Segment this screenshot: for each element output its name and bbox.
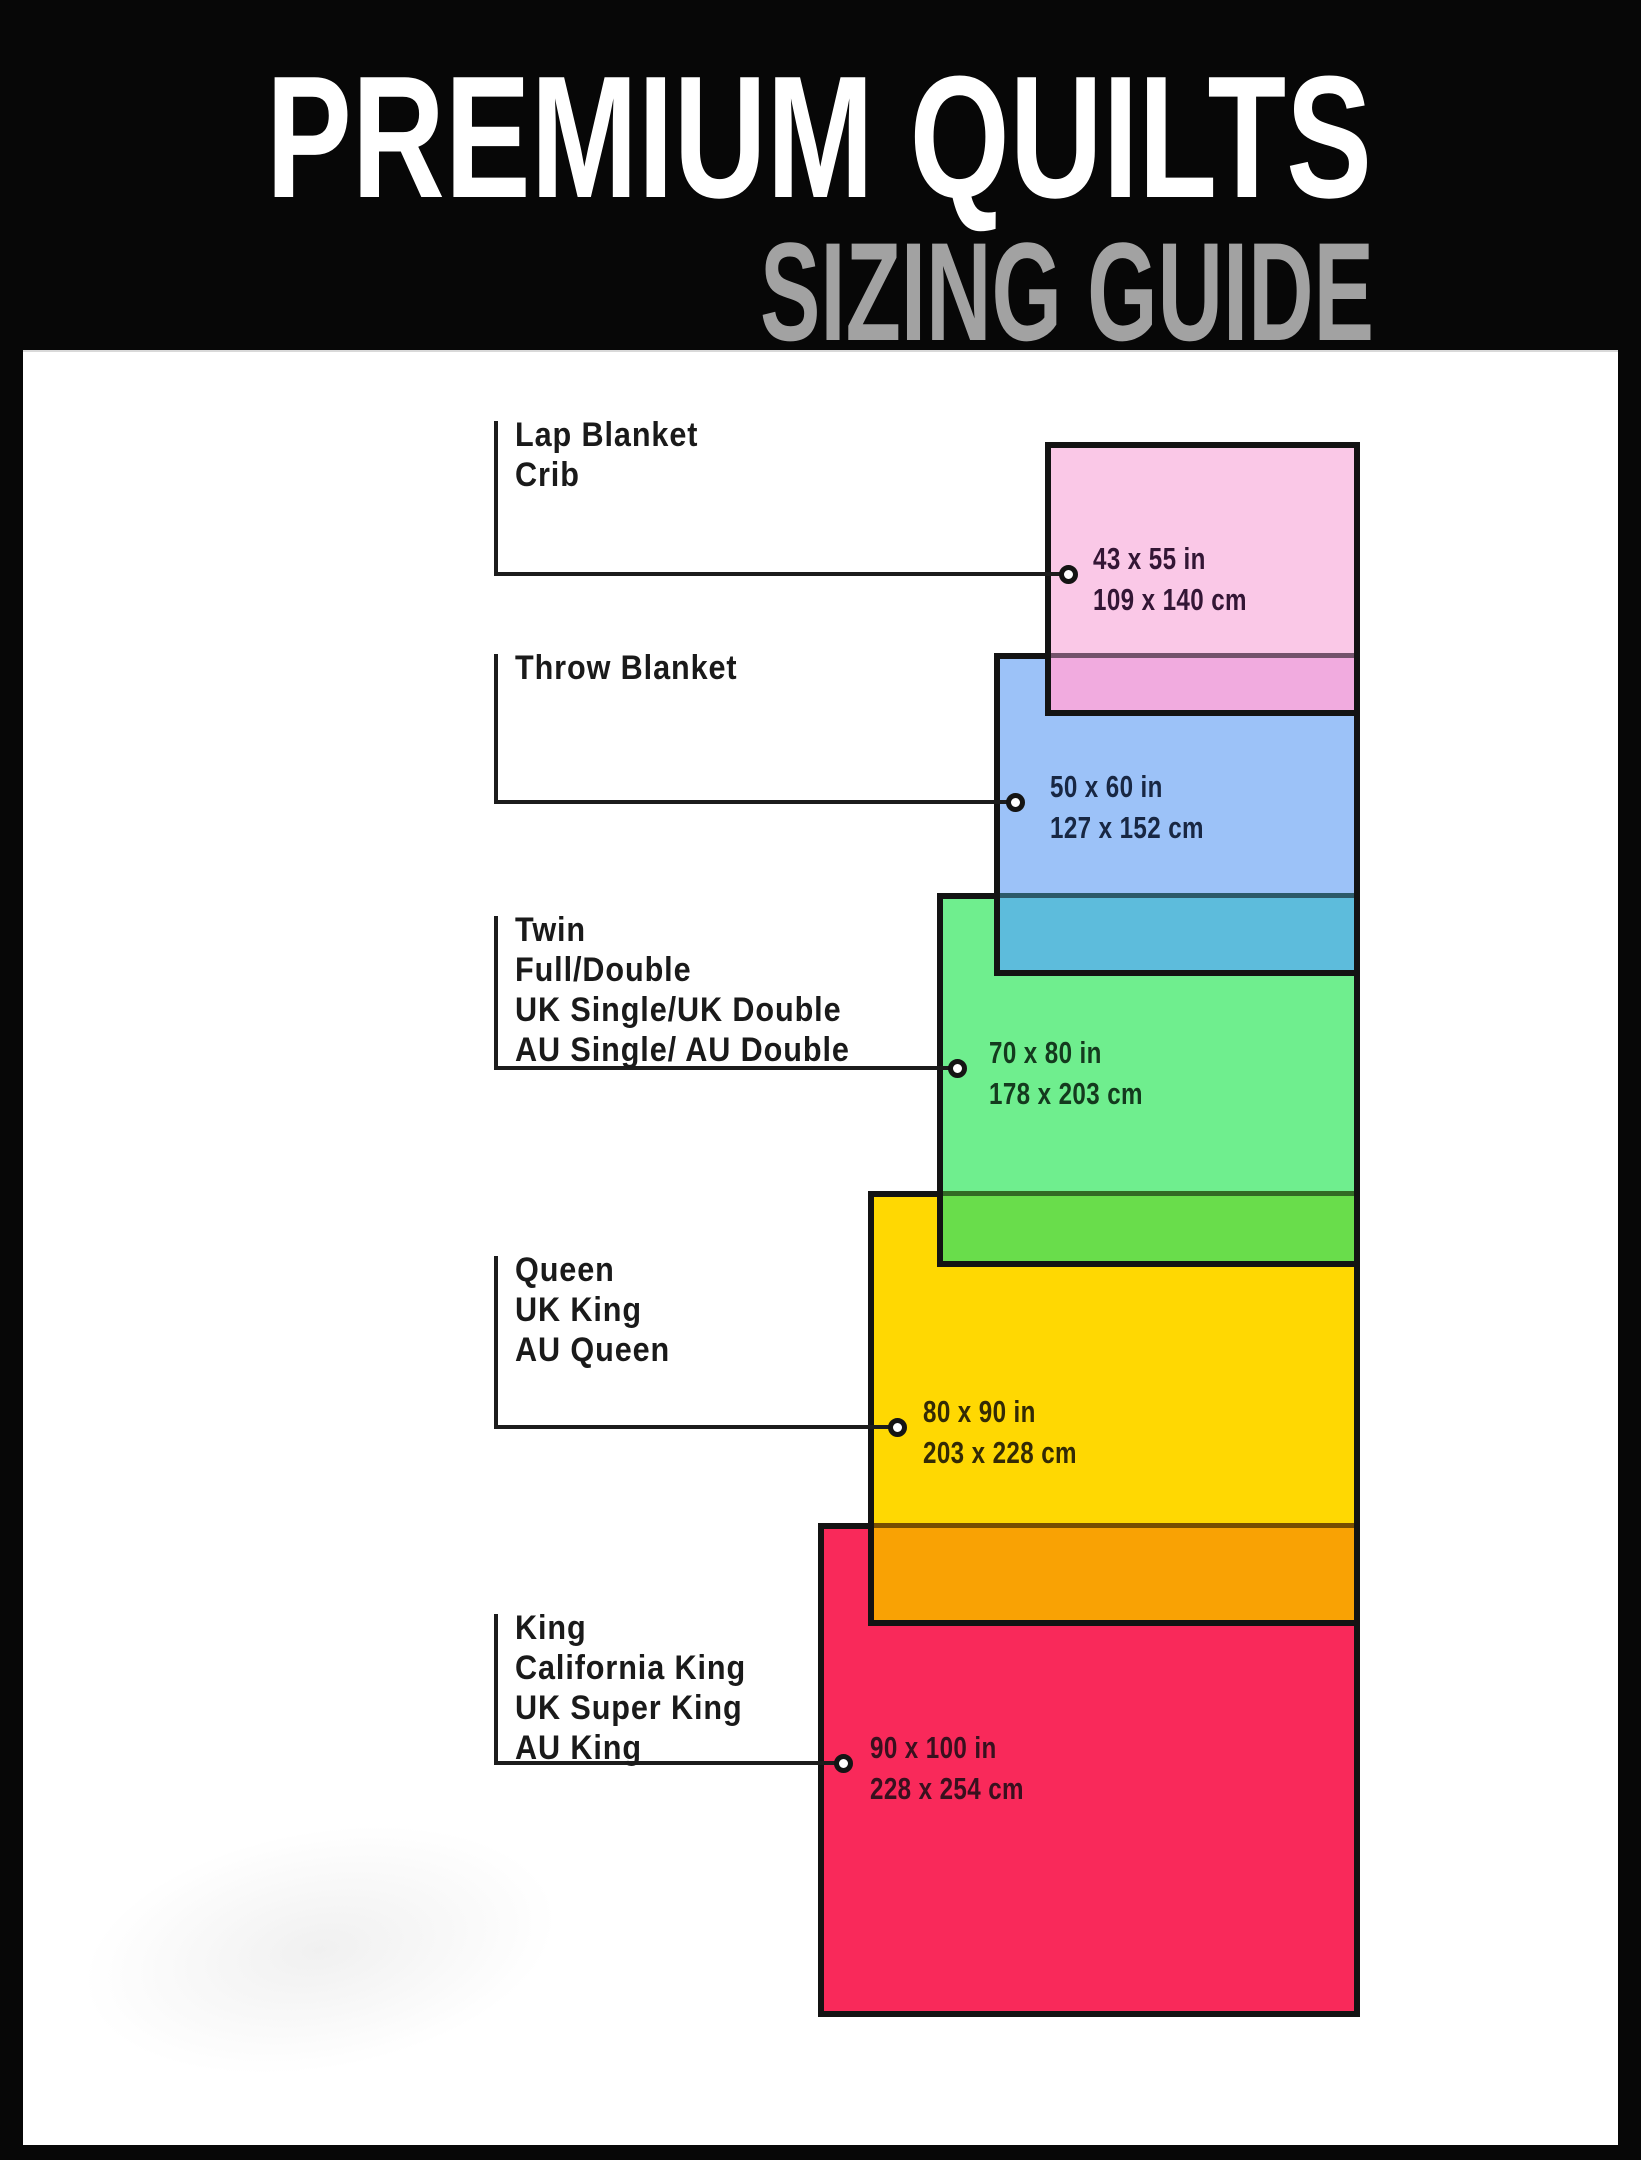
king-label-line: UK Super King [515,1688,746,1728]
queen-label-line: AU Queen [515,1330,670,1370]
king-label-line: California King [515,1648,746,1688]
twin-label: Twin Full/Double UK Single/UK Double AU … [515,910,850,1070]
twin-size-cm: 178 x 203 cm [989,1073,1143,1114]
infographic-page: PREMIUM QUILTS SIZING GUIDE 43 x 55 in 1… [0,0,1641,2160]
throw-label: Throw Blanket [515,648,738,688]
twin-label-line: Twin [515,910,850,950]
twin-label-line: AU Single/ AU Double [515,1030,850,1070]
throw-label-line: Throw Blanket [515,648,738,688]
twin-size-in: 70 x 80 in [989,1032,1143,1073]
throw-dimensions: 50 x 60 in 127 x 152 cm [1050,766,1247,848]
queen-label-line: UK King [515,1290,670,1330]
king-label: King California King UK Super King AU Ki… [515,1608,746,1768]
queen-connector-vertical [494,1256,498,1429]
lap-connector-horizontal [494,572,1068,576]
queen-label-line: Queen [515,1250,670,1290]
throw-connector-horizontal [494,800,1015,804]
throw-size-in: 50 x 60 in [1050,766,1204,807]
king-size-in: 90 x 100 in [870,1727,1024,1768]
queen-dimensions: 80 x 90 in 203 x 228 cm [923,1391,1120,1473]
queen-size-in: 80 x 90 in [923,1391,1077,1432]
queen-connector-dot [888,1418,907,1437]
queen-label: Queen UK King AU Queen [515,1250,670,1370]
lap-connector-vertical [494,421,498,576]
page-subtitle: SIZING GUIDE [760,213,1374,350]
twin-connector-dot [948,1059,967,1078]
twin-connector-vertical [494,916,498,1070]
throw-size-cm: 127 x 152 cm [1050,807,1204,848]
king-label-line: AU King [515,1728,746,1768]
twin-label-line: Full/Double [515,950,850,990]
king-connector-dot [834,1754,853,1773]
lap-label-line: Lap Blanket [515,415,698,455]
lap-size-cm: 109 x 140 cm [1093,579,1247,620]
header-band: PREMIUM QUILTS SIZING GUIDE [0,0,1641,350]
twin-label-line: UK Single/UK Double [515,990,850,1030]
lap-connector-dot [1059,565,1078,584]
throw-connector-vertical [494,654,498,804]
queen-connector-horizontal [494,1425,897,1429]
queen-size-cm: 203 x 228 cm [923,1432,1077,1473]
twin-dimensions: 70 x 80 in 178 x 203 cm [989,1032,1186,1114]
king-connector-vertical [494,1614,498,1765]
king-label-line: King [515,1608,746,1648]
lap-dimensions: 43 x 55 in 109 x 140 cm [1093,538,1290,620]
lap-size-in: 43 x 55 in [1093,538,1247,579]
king-size-cm: 228 x 254 cm [870,1768,1024,1809]
throw-connector-dot [1006,793,1025,812]
lap-label: Lap Blanket Crib [515,415,698,495]
page-title: PREMIUM QUILTS [266,39,1372,234]
king-dimensions: 90 x 100 in 228 x 254 cm [870,1727,1067,1809]
lap-label-line: Crib [515,455,698,495]
